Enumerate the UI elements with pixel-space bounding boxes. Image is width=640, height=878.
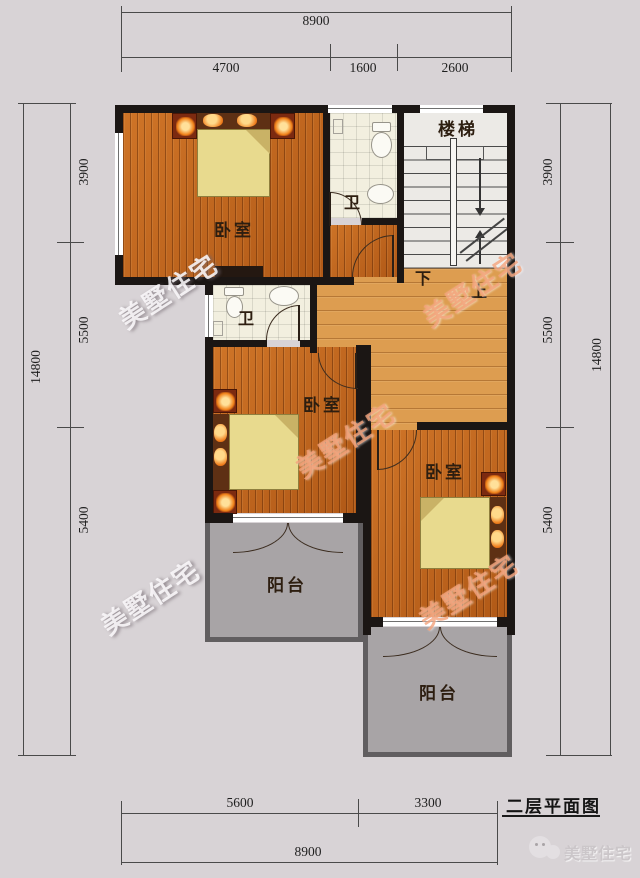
wall-segment [497,617,512,627]
dim-label: 14800 [28,337,44,397]
dim-label: 5600 [214,795,266,811]
nightstand [270,113,295,139]
dim-label: 8900 [282,844,334,860]
wall-segment [397,105,404,283]
dim-end [546,755,612,756]
dim-end [18,755,76,756]
nightstand [172,113,197,139]
dim-tick [397,44,398,71]
stairs-down-label: 下 [412,270,434,290]
wall-segment [205,513,233,523]
door-leaf [329,192,331,226]
nightstand [481,472,506,496]
bed-fold [246,130,270,154]
pillow [203,114,223,127]
balcony2-label: 阳台 [408,684,470,704]
dim-label: 5500 [540,300,556,360]
dim-ext-line [511,6,512,72]
wall-segment [330,277,354,285]
floor-plan-canvas: 8900 4700 1600 2600 3900 5500 5400 14800… [0,0,640,878]
dim-label: 3900 [540,142,556,202]
window [115,133,123,255]
wall-segment [115,105,123,135]
wall-segment [417,422,507,430]
sink-icon [367,184,394,204]
balcony1-label: 阳台 [256,576,318,596]
dim-tick [546,427,574,428]
bathroom2-label: 卫 [230,310,262,330]
dim-tick [330,44,331,71]
bed-fold [275,415,298,438]
sink-icon [269,286,299,306]
pillow [214,448,227,466]
window [328,105,392,113]
window [420,105,483,113]
dim-end [546,103,612,104]
door-leaf [392,235,394,277]
dim-label: 2600 [429,60,481,76]
nightstand [213,389,237,413]
drawing-title: 二层平面图 [506,792,601,817]
wall-segment [363,617,383,627]
door-leaf [298,305,300,341]
title-underline [502,815,600,817]
dim-label: 1600 [337,60,389,76]
wall-segment [310,285,317,353]
nightstand [213,490,237,514]
dim-label: 14800 [589,325,605,385]
wall-segment [362,218,397,225]
dim-line-right-total [610,103,611,755]
toilet-icon [371,132,392,158]
bathroom1-label: 卫 [336,194,368,214]
dim-label: 5400 [76,490,92,550]
brand-name: 美墅住宅 [564,840,632,864]
bedroom2-label: 卧室 [292,396,354,416]
arrow-down-icon [475,208,485,216]
dim-line-right-segments [560,103,561,755]
dim-line-left-total [23,103,24,755]
dim-ext-line [497,801,498,865]
dim-line-bottom-total [121,862,498,863]
toilet-icon [372,122,391,132]
stair-down-arrow [479,158,481,208]
dim-line-left-segments [70,103,71,755]
dim-label: 4700 [200,60,252,76]
dim-label: 3300 [402,795,454,811]
bedroom3-label: 卧室 [414,463,476,483]
pillow [214,424,227,442]
wall-segment [343,513,363,523]
pillow [237,114,257,127]
dim-ext-line [121,6,122,72]
dim-tick [57,427,84,428]
dim-ext-line [121,801,122,865]
shower-icon [213,321,223,336]
wall-segment [205,337,213,523]
bed-fold [421,498,444,521]
door-leaf [355,353,357,389]
dim-line-bottom-segments [121,813,498,814]
shower-icon [333,119,343,134]
window [205,295,213,337]
pillow [491,506,504,524]
french-door-panel [233,514,343,522]
brand-logo-icon [546,845,560,859]
wall-segment [205,340,267,347]
dim-label: 8900 [290,13,342,29]
wall-segment [115,105,328,113]
dim-end [18,103,76,104]
stairs-label: 楼梯 [426,120,490,140]
dim-tick [57,242,84,243]
dim-label: 3900 [76,142,92,202]
toilet-icon [224,287,244,296]
stair-rail [450,138,457,266]
dim-line-top-segments [121,57,512,58]
